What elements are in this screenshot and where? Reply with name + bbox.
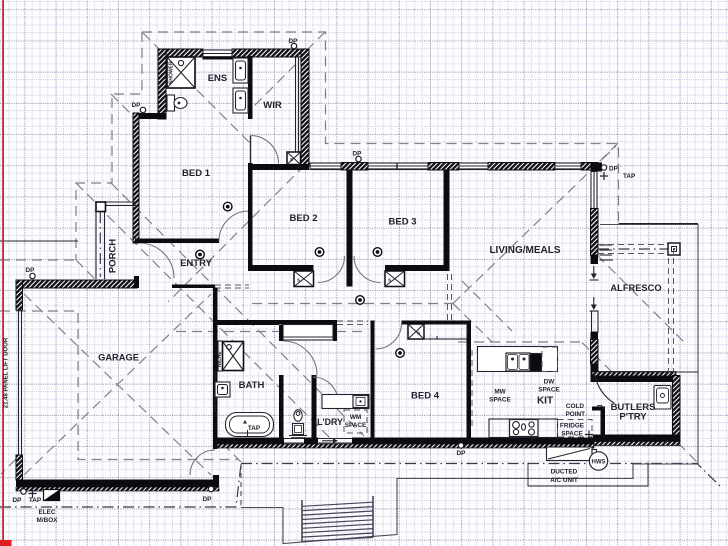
svg-text:s: s bbox=[388, 278, 391, 284]
svg-text:LIVING/MEALS: LIVING/MEALS bbox=[489, 245, 560, 256]
svg-text:SPACE: SPACE bbox=[561, 431, 583, 438]
svg-text:s: s bbox=[417, 331, 420, 337]
svg-text:21.48 PANEL LIFT DOOR: 21.48 PANEL LIFT DOOR bbox=[4, 337, 10, 408]
svg-text:BED 2: BED 2 bbox=[290, 213, 318, 224]
svg-text:DP: DP bbox=[457, 450, 467, 457]
svg-text:BED 1: BED 1 bbox=[182, 168, 211, 179]
svg-text:POINT: POINT bbox=[565, 411, 585, 418]
svg-text:A/C UNIT: A/C UNIT bbox=[550, 477, 578, 484]
svg-text:ELEC: ELEC bbox=[38, 509, 55, 516]
svg-text:P'TRY: P'TRY bbox=[619, 412, 647, 423]
svg-text:HWS: HWS bbox=[592, 460, 606, 466]
svg-text:PORCH: PORCH bbox=[108, 239, 119, 273]
svg-text:MW: MW bbox=[494, 389, 506, 396]
svg-text:BED 3: BED 3 bbox=[389, 217, 417, 228]
svg-text:M/BOX: M/BOX bbox=[37, 517, 59, 524]
svg-text:BATH: BATH bbox=[239, 380, 265, 391]
svg-text:DP: DP bbox=[13, 497, 23, 504]
svg-text:WIR: WIR bbox=[263, 100, 282, 111]
svg-text:FRIDGE: FRIDGE bbox=[560, 423, 585, 430]
svg-text:s: s bbox=[290, 157, 293, 163]
svg-text:TAP: TAP bbox=[623, 173, 636, 180]
svg-text:SHOWER: SHOWER bbox=[169, 61, 175, 84]
svg-text:s: s bbox=[297, 278, 300, 284]
svg-text:ALFRESCO: ALFRESCO bbox=[610, 283, 661, 293]
svg-text:TAP: TAP bbox=[248, 425, 261, 432]
svg-text:BED 4: BED 4 bbox=[411, 391, 440, 402]
svg-text:GARAGE: GARAGE bbox=[98, 353, 139, 363]
svg-text:KIT: KIT bbox=[537, 396, 553, 407]
svg-text:SPACE: SPACE bbox=[538, 387, 560, 394]
svg-text:TAP: TAP bbox=[29, 497, 42, 504]
svg-text:DP: DP bbox=[609, 166, 619, 173]
svg-text:DW: DW bbox=[544, 379, 556, 386]
svg-text:WM: WM bbox=[350, 414, 361, 421]
svg-text:COLD: COLD bbox=[566, 403, 584, 410]
svg-text:NICHE: NICHE bbox=[217, 351, 223, 367]
svg-text:ENTRY: ENTRY bbox=[180, 258, 213, 269]
svg-text:SPACE: SPACE bbox=[489, 397, 511, 404]
svg-text:SPACE: SPACE bbox=[345, 422, 367, 429]
svg-text:DP: DP bbox=[132, 102, 142, 109]
svg-text:L'DRY: L'DRY bbox=[317, 417, 343, 427]
svg-text:DP: DP bbox=[203, 496, 213, 503]
svg-text:ENS: ENS bbox=[208, 73, 228, 84]
svg-text:DUCTED: DUCTED bbox=[551, 469, 578, 476]
